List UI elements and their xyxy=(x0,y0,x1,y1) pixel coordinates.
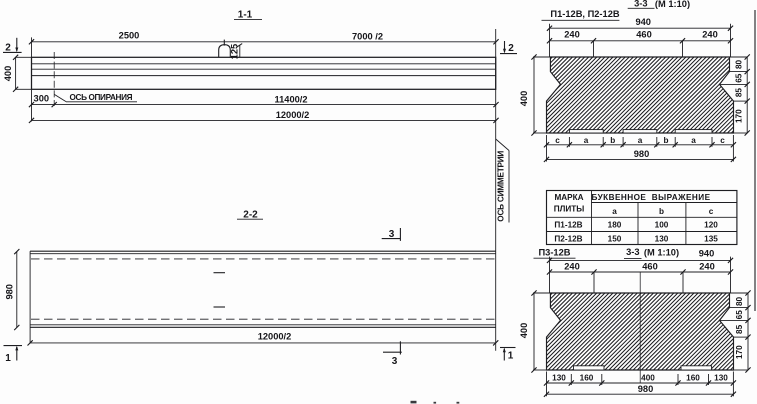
svg-text:240: 240 xyxy=(564,30,580,40)
svg-text:80: 80 xyxy=(735,297,744,307)
svg-text:а: а xyxy=(612,207,617,216)
svg-text:240: 240 xyxy=(564,261,580,271)
svg-text:150: 150 xyxy=(608,234,622,243)
svg-text:7000 /2: 7000 /2 xyxy=(352,31,383,41)
svg-text:а: а xyxy=(691,136,696,145)
svg-text:b: b xyxy=(610,136,615,145)
svg-text:1: 1 xyxy=(508,351,514,362)
svg-text:180: 180 xyxy=(608,221,622,230)
svg-text:980: 980 xyxy=(638,384,654,394)
svg-text:980: 980 xyxy=(4,284,14,300)
svg-text:2-2: 2-2 xyxy=(243,209,258,220)
svg-text:130: 130 xyxy=(655,234,669,243)
svg-text:12000/2: 12000/2 xyxy=(258,331,292,341)
svg-text:80: 80 xyxy=(734,60,743,70)
svg-text:ОСЬ ОПИРАНИЯ: ОСЬ ОПИРАНИЯ xyxy=(70,93,133,102)
svg-text:980: 980 xyxy=(634,149,650,159)
svg-text:2500: 2500 xyxy=(119,31,140,41)
svg-text:65: 65 xyxy=(735,310,744,320)
svg-text:БУКВЕННОЕ ВЫРАЖЕНИЕ: БУКВЕННОЕ ВЫРАЖЕНИЕ xyxy=(591,193,710,202)
svg-text:ПЛИТЫ: ПЛИТЫ xyxy=(554,205,585,214)
svg-text:240: 240 xyxy=(702,30,718,40)
svg-text:12000/2: 12000/2 xyxy=(276,110,310,120)
svg-text:125: 125 xyxy=(229,44,239,60)
svg-text:120: 120 xyxy=(704,221,718,230)
svg-text:3-3: 3-3 xyxy=(634,0,647,9)
svg-text:МАРКА: МАРКА xyxy=(554,193,583,202)
svg-text:460: 460 xyxy=(636,30,652,40)
svg-text:85: 85 xyxy=(735,324,744,334)
svg-text:а: а xyxy=(638,136,643,145)
svg-text:130: 130 xyxy=(714,374,728,383)
svg-text:300: 300 xyxy=(34,93,50,103)
svg-text:b: b xyxy=(663,136,668,145)
svg-text:170: 170 xyxy=(735,345,744,359)
svg-text:160: 160 xyxy=(686,374,700,383)
svg-text:1-1: 1-1 xyxy=(238,10,253,21)
svg-text:а: а xyxy=(584,136,589,145)
svg-text:3-3: 3-3 xyxy=(626,247,639,257)
svg-text:160: 160 xyxy=(580,374,594,383)
svg-text:65: 65 xyxy=(734,73,743,83)
svg-text:400: 400 xyxy=(519,91,529,107)
svg-text:с: с xyxy=(720,136,725,145)
svg-text:85: 85 xyxy=(734,88,743,98)
svg-text:П2-12В: П2-12В xyxy=(554,234,582,243)
svg-text:460: 460 xyxy=(642,261,658,271)
svg-text:П1-12В: П1-12В xyxy=(554,221,582,230)
svg-text:(М 1:10): (М 1:10) xyxy=(655,0,690,9)
svg-text:1: 1 xyxy=(5,353,11,364)
svg-text:П3-12В: П3-12В xyxy=(538,247,570,257)
svg-text:400: 400 xyxy=(519,323,529,339)
svg-text:170: 170 xyxy=(734,109,743,123)
svg-text:3: 3 xyxy=(392,356,398,367)
svg-text:с: с xyxy=(555,136,560,145)
svg-text:400: 400 xyxy=(641,374,655,383)
svg-text:2: 2 xyxy=(5,42,11,53)
svg-text:940: 940 xyxy=(699,248,715,258)
svg-text:100: 100 xyxy=(655,221,669,230)
svg-text:(М 1:10): (М 1:10) xyxy=(644,248,679,258)
svg-text:2: 2 xyxy=(508,43,514,54)
svg-text:240: 240 xyxy=(699,261,715,271)
svg-text:11400/2: 11400/2 xyxy=(274,94,307,104)
svg-text:400: 400 xyxy=(3,66,13,82)
svg-text:940: 940 xyxy=(635,17,651,27)
svg-text:135: 135 xyxy=(704,234,718,243)
svg-text:с: с xyxy=(709,207,714,216)
svg-text:130: 130 xyxy=(552,374,566,383)
svg-text:b: b xyxy=(659,207,664,216)
svg-text:П1-12В, П2-12В: П1-12В, П2-12В xyxy=(550,9,619,19)
svg-text:ОСЬ СИММЕТРИИ: ОСЬ СИММЕТРИИ xyxy=(497,151,506,222)
